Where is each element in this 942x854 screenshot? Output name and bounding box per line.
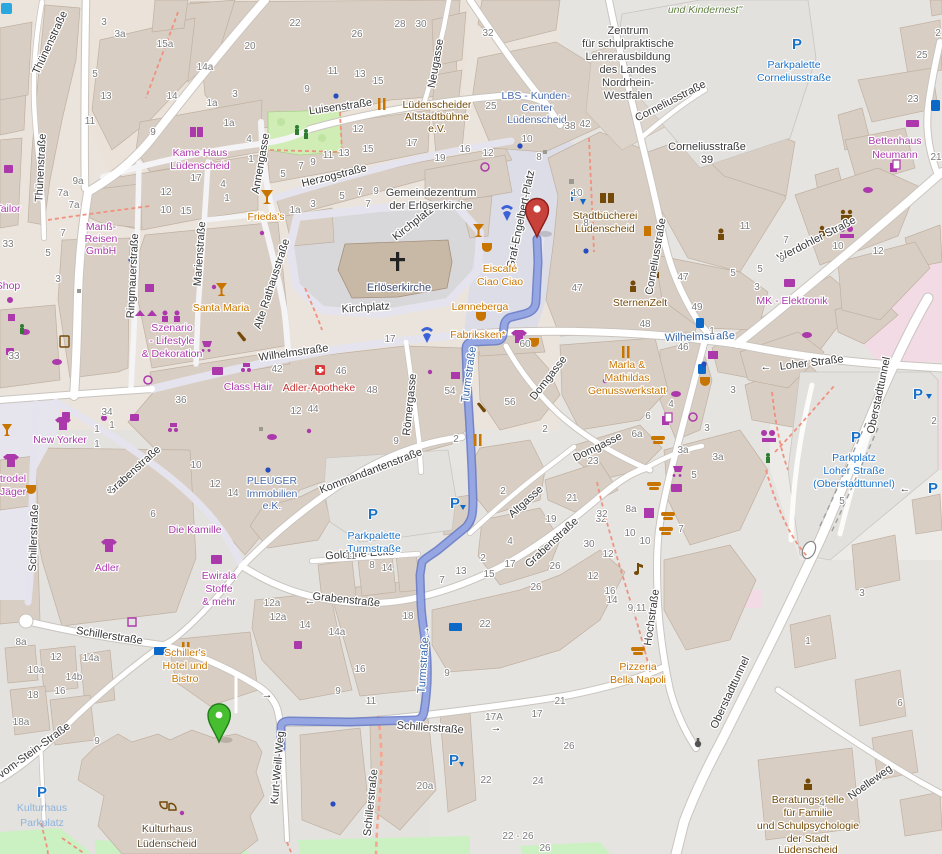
svg-text:Parkplatz: Parkplatz: [20, 817, 64, 829]
svg-text:11: 11: [366, 696, 377, 707]
svg-text:Lüdenscheid: Lüdenscheid: [137, 838, 197, 850]
svg-text:Santa Maria: Santa Maria: [193, 302, 250, 314]
svg-text:4: 4: [220, 179, 226, 190]
svg-text:4: 4: [819, 798, 825, 809]
svg-text:Schiller's: Schiller's: [164, 647, 206, 659]
svg-text:19: 19: [545, 514, 557, 525]
svg-text:7: 7: [678, 524, 684, 535]
svg-text:Pizzeria: Pizzeria: [619, 661, 657, 673]
svg-text:17: 17: [531, 709, 543, 720]
svg-text:→: →: [262, 689, 273, 701]
svg-text:8: 8: [583, 218, 589, 229]
svg-text:Fabriksken*: Fabriksken*: [450, 329, 505, 341]
svg-text:8: 8: [369, 560, 375, 571]
svg-text:22: 22: [480, 775, 492, 786]
svg-text:34: 34: [101, 407, 113, 418]
svg-text:P: P: [792, 36, 802, 53]
svg-text:und Kindernest": und Kindernest": [668, 4, 744, 16]
svg-text:8a: 8a: [15, 637, 27, 648]
svg-text:9a: 9a: [72, 176, 84, 187]
svg-text:3: 3: [730, 385, 736, 396]
svg-text:7: 7: [783, 235, 789, 246]
svg-text:20: 20: [244, 41, 256, 52]
svg-text:des Landes: des Landes: [600, 64, 657, 76]
svg-text:9,11: 9,11: [628, 603, 647, 614]
svg-text:7: 7: [357, 187, 363, 198]
svg-text:7: 7: [439, 575, 445, 586]
svg-text:14: 14: [166, 91, 178, 102]
svg-text:21: 21: [554, 696, 566, 707]
svg-text:5: 5: [339, 191, 345, 202]
svg-text:1: 1: [248, 154, 254, 165]
svg-text:P: P: [450, 495, 460, 512]
svg-text:Marla &: Marla &: [609, 359, 645, 371]
svg-text:4: 4: [507, 536, 513, 547]
svg-text:20a: 20a: [417, 781, 434, 792]
svg-text:17: 17: [406, 138, 418, 149]
svg-text:1: 1: [94, 424, 100, 435]
svg-text:für Familie: für Familie: [783, 807, 832, 819]
svg-text:Hotel und: Hotel und: [163, 660, 208, 672]
svg-text:47: 47: [571, 283, 583, 294]
svg-text:10: 10: [571, 188, 583, 199]
svg-text:12: 12: [352, 124, 364, 135]
svg-text:der Erlöserkirche: der Erlöserkirche: [389, 200, 472, 212]
svg-text:& mehr: & mehr: [202, 596, 236, 608]
svg-text:←: ←: [305, 595, 316, 607]
svg-text:9: 9: [779, 254, 785, 265]
svg-text:19: 19: [434, 153, 446, 164]
svg-text:25: 25: [485, 101, 497, 112]
svg-text:22: 22: [289, 18, 301, 29]
svg-text:13: 13: [338, 148, 350, 159]
svg-text:Beratungsstelle: Beratungsstelle: [772, 794, 845, 806]
svg-text:7: 7: [298, 161, 304, 172]
svg-text:Frieda's: Frieda's: [247, 211, 284, 223]
svg-text:Zentrum: Zentrum: [608, 25, 649, 37]
svg-text:2: 2: [453, 434, 459, 445]
svg-text:e.K.: e.K.: [263, 500, 282, 512]
svg-text:3: 3: [859, 588, 865, 599]
svg-text:2: 2: [935, 28, 941, 39]
svg-text:Corneliusstraße: Corneliusstraße: [757, 72, 831, 84]
svg-text:48: 48: [639, 319, 651, 330]
svg-text:39: 39: [701, 154, 713, 166]
svg-text:13: 13: [354, 69, 366, 80]
svg-text:10: 10: [190, 460, 202, 471]
svg-text:10: 10: [639, 536, 651, 547]
svg-text:26: 26: [539, 843, 551, 854]
svg-text:5: 5: [280, 169, 286, 180]
svg-text:42: 42: [271, 364, 283, 375]
svg-text:1a: 1a: [206, 98, 218, 109]
svg-text:6: 6: [645, 411, 651, 422]
svg-text:Nordrhein-: Nordrhein-: [602, 77, 654, 89]
svg-text:16: 16: [459, 144, 471, 155]
svg-text:30: 30: [415, 19, 427, 30]
svg-text:1: 1: [109, 420, 115, 431]
svg-text:Kame Haus: Kame Haus: [173, 147, 228, 159]
svg-text:3: 3: [101, 17, 107, 28]
svg-text:10: 10: [832, 241, 844, 252]
svg-text:11: 11: [328, 66, 339, 77]
svg-text:12: 12: [50, 652, 62, 663]
svg-text:Lüdenscheid: Lüdenscheid: [170, 160, 230, 172]
svg-text:13: 13: [100, 91, 112, 102]
svg-text:22: 22: [479, 619, 491, 630]
svg-text:24: 24: [532, 776, 544, 787]
svg-text:23: 23: [907, 94, 919, 105]
svg-text:10a: 10a: [28, 665, 45, 676]
svg-text:26: 26: [530, 582, 542, 593]
svg-text:3a: 3a: [114, 29, 126, 40]
svg-text:30: 30: [583, 539, 595, 550]
svg-text:7: 7: [365, 199, 371, 210]
svg-text:15: 15: [362, 144, 374, 155]
svg-text:Jäger: Jäger: [0, 486, 27, 498]
svg-text:4: 4: [668, 399, 674, 410]
svg-text:15a: 15a: [157, 39, 174, 50]
svg-text:3a: 3a: [712, 452, 724, 463]
svg-text:2: 2: [500, 486, 506, 497]
svg-text:P: P: [449, 752, 459, 769]
svg-text:Lehrerausbildung: Lehrerausbildung: [585, 51, 670, 63]
svg-text:10: 10: [160, 205, 172, 216]
svg-text:Genusswerkstatt: Genusswerkstatt: [588, 385, 666, 397]
svg-text:Tailor: Tailor: [0, 203, 21, 215]
svg-text:14a: 14a: [197, 62, 214, 73]
svg-text:9: 9: [393, 436, 399, 447]
svg-text:Stoffe: Stoffe: [205, 583, 232, 595]
svg-text:32: 32: [482, 28, 494, 39]
svg-text:26: 26: [549, 561, 561, 572]
svg-text:GmbH: GmbH: [86, 245, 116, 257]
svg-text:Die Kamille: Die Kamille: [168, 524, 221, 536]
svg-text:1a: 1a: [289, 205, 301, 216]
svg-text:5: 5: [839, 496, 845, 507]
svg-text:PLEUGER: PLEUGER: [247, 475, 298, 487]
svg-text:49: 49: [691, 302, 703, 313]
svg-text:Bistro: Bistro: [172, 673, 199, 685]
svg-text:1: 1: [805, 636, 811, 647]
svg-text:für schulpraktische: für schulpraktische: [582, 38, 674, 50]
svg-text:12a: 12a: [264, 598, 281, 609]
svg-text:17: 17: [384, 334, 396, 345]
svg-text:1: 1: [107, 485, 113, 496]
svg-text:54: 54: [444, 386, 456, 397]
svg-text:Parkpalette: Parkpalette: [767, 59, 820, 71]
svg-text:56: 56: [504, 397, 516, 408]
svg-text:Wilhelmstraße: Wilhelmstraße: [665, 330, 736, 344]
svg-text:3: 3: [704, 423, 710, 434]
svg-text:47: 47: [677, 272, 689, 283]
svg-text:P: P: [851, 429, 861, 446]
svg-text:3: 3: [232, 89, 238, 100]
svg-text:1: 1: [224, 193, 230, 204]
svg-text:15: 15: [483, 569, 495, 580]
svg-text:7a: 7a: [57, 188, 69, 199]
svg-text:Lønneberga: Lønneberga: [452, 301, 509, 313]
svg-text:38: 38: [564, 121, 576, 132]
svg-text:11: 11: [85, 116, 96, 127]
svg-text:36: 36: [175, 395, 187, 406]
svg-text:9: 9: [444, 668, 450, 679]
svg-text:→: →: [491, 722, 502, 734]
svg-text:15: 15: [180, 206, 192, 217]
svg-text:17: 17: [504, 559, 516, 570]
svg-text:Altstadtbühne: Altstadtbühne: [405, 111, 469, 123]
svg-text:Lüdenscheider: Lüdenscheider: [403, 99, 472, 111]
svg-text:1a: 1a: [223, 118, 235, 129]
svg-text:& Dekoration: & Dekoration: [142, 348, 203, 360]
svg-text:3: 3: [310, 199, 316, 210]
svg-text:6: 6: [150, 509, 156, 520]
svg-text:32: 32: [596, 509, 608, 520]
svg-text:9: 9: [310, 157, 316, 168]
svg-text:5: 5: [757, 264, 763, 275]
svg-text:7: 7: [60, 228, 66, 239]
svg-text:Westfalen: Westfalen: [604, 90, 653, 102]
svg-text:18: 18: [27, 690, 39, 701]
svg-text:5: 5: [691, 470, 697, 481]
svg-text:2: 2: [542, 424, 548, 435]
svg-text:Parkpalette: Parkpalette: [347, 530, 400, 542]
svg-text:Erlöserkirche: Erlöserkirche: [367, 282, 431, 294]
svg-text:8: 8: [536, 152, 542, 163]
svg-text:Manß-: Manß-: [86, 221, 117, 233]
svg-text:14: 14: [381, 563, 393, 574]
svg-text:Ciao Ciao: Ciao Ciao: [477, 276, 523, 288]
svg-text:14a: 14a: [83, 653, 100, 664]
svg-text:Adler-Apotheke: Adler-Apotheke: [283, 382, 356, 394]
svg-text:6a: 6a: [631, 429, 643, 440]
svg-text:18a: 18a: [13, 717, 30, 728]
svg-text:9: 9: [304, 84, 310, 95]
svg-text:26: 26: [563, 741, 575, 752]
svg-text:6: 6: [897, 698, 903, 709]
svg-text:21: 21: [930, 152, 942, 163]
svg-text:14b: 14b: [66, 672, 83, 683]
svg-text:Shop: Shop: [0, 280, 20, 292]
svg-text:33: 33: [2, 239, 14, 250]
svg-text:3a: 3a: [677, 445, 689, 456]
svg-text:12: 12: [602, 549, 614, 560]
svg-text:Lüdenscheid: Lüdenscheid: [507, 114, 567, 126]
svg-text:3: 3: [754, 282, 760, 293]
svg-text:12: 12: [290, 406, 302, 417]
svg-text:Szenario: Szenario: [151, 322, 193, 334]
svg-text:23: 23: [587, 456, 599, 467]
svg-text:12: 12: [872, 246, 884, 257]
svg-text:11: 11: [323, 150, 334, 161]
svg-text:- Lifestyle: - Lifestyle: [150, 335, 195, 347]
svg-text:26: 26: [351, 29, 363, 40]
svg-text:14: 14: [227, 488, 239, 499]
svg-text:12: 12: [587, 571, 599, 582]
svg-text:New Yorker: New Yorker: [33, 434, 87, 446]
svg-text:11: 11: [740, 221, 751, 232]
svg-text:14: 14: [299, 620, 311, 631]
svg-text:Kulturhaus: Kulturhaus: [17, 802, 67, 814]
svg-text:5: 5: [92, 69, 98, 80]
svg-text:15: 15: [372, 76, 384, 87]
svg-text:P: P: [913, 386, 923, 403]
svg-text:12: 12: [160, 187, 172, 198]
svg-text:4: 4: [246, 134, 252, 145]
svg-text:Schillerstraße: Schillerstraße: [27, 504, 41, 572]
svg-text:22 - 26: 22 - 26: [502, 831, 534, 842]
svg-text:46: 46: [335, 366, 347, 377]
svg-text:Class Hair: Class Hair: [224, 381, 273, 393]
svg-text:Corneliusstraße: Corneliusstraße: [668, 141, 746, 153]
svg-text:2: 2: [480, 553, 486, 564]
svg-text:12a: 12a: [270, 612, 287, 623]
svg-text:28: 28: [394, 19, 406, 30]
svg-text:10: 10: [521, 134, 533, 145]
svg-text:←: ←: [900, 483, 911, 495]
svg-text:14a: 14a: [329, 627, 346, 638]
svg-text:44: 44: [307, 404, 319, 415]
svg-text:SternenZelt: SternenZelt: [613, 297, 667, 309]
svg-text:LBS - Kunden-: LBS - Kunden-: [502, 90, 571, 102]
svg-text:(Oberstadttunnel): (Oberstadttunnel): [813, 478, 895, 490]
svg-text:48: 48: [366, 385, 378, 396]
svg-text:Neumann: Neumann: [872, 149, 918, 161]
svg-text:Immobilien: Immobilien: [247, 488, 298, 500]
svg-text:Mathildas: Mathildas: [605, 372, 650, 384]
svg-text:8a: 8a: [625, 504, 637, 515]
svg-text:←: ←: [761, 361, 772, 373]
svg-text:3: 3: [55, 274, 61, 285]
svg-text:46: 46: [677, 342, 689, 353]
svg-text:11: 11: [346, 551, 357, 562]
svg-text:trodel: trodel: [0, 473, 26, 485]
svg-text:Parkplatz: Parkplatz: [832, 452, 876, 464]
svg-text:13: 13: [455, 566, 467, 577]
svg-text:Center: Center: [521, 102, 553, 114]
svg-text:17: 17: [190, 173, 202, 184]
svg-text:33: 33: [8, 351, 20, 362]
svg-text:21: 21: [566, 493, 578, 504]
svg-text:Kulturhaus: Kulturhaus: [142, 823, 192, 835]
svg-text:1: 1: [94, 439, 100, 450]
svg-text:MK - Elektronik: MK - Elektronik: [756, 295, 828, 307]
svg-text:P: P: [928, 480, 938, 497]
svg-text:Ewirala: Ewirala: [202, 570, 237, 582]
svg-text:17A: 17A: [485, 712, 503, 723]
svg-text:Bettenhaus: Bettenhaus: [868, 135, 921, 147]
svg-text:18: 18: [402, 611, 414, 622]
svg-text:Lüdenscheid: Lüdenscheid: [778, 844, 838, 854]
svg-text:16: 16: [354, 664, 366, 675]
svg-text:12: 12: [209, 479, 221, 490]
svg-text:25: 25: [916, 50, 928, 61]
svg-text:9: 9: [335, 686, 341, 697]
svg-text:9: 9: [150, 127, 156, 138]
svg-text:Loher Straße: Loher Straße: [823, 465, 884, 477]
svg-text:Gemeindezentrum: Gemeindezentrum: [386, 187, 477, 199]
svg-text:60: 60: [519, 339, 531, 350]
svg-text:Eiscafé: Eiscafé: [483, 263, 518, 275]
svg-text:5: 5: [45, 248, 51, 259]
svg-text:7a: 7a: [68, 200, 80, 211]
svg-text:Bella Napoli: Bella Napoli: [610, 674, 666, 686]
svg-text:e.V.: e.V.: [428, 123, 446, 135]
svg-text:P: P: [368, 506, 378, 523]
svg-text:9: 9: [94, 736, 100, 747]
svg-text:2: 2: [931, 416, 937, 427]
svg-text:14: 14: [606, 595, 618, 606]
svg-text:Reisen: Reisen: [85, 233, 118, 245]
svg-text:1: 1: [709, 326, 715, 337]
svg-text:Adler: Adler: [95, 562, 120, 574]
svg-text:10: 10: [624, 528, 636, 539]
svg-text:und Schulpsychologie: und Schulpsychologie: [757, 820, 859, 832]
svg-text:12: 12: [482, 148, 494, 159]
svg-text:P: P: [37, 784, 47, 801]
svg-text:9: 9: [373, 186, 379, 197]
svg-text:42: 42: [579, 119, 591, 130]
svg-text:16: 16: [54, 686, 66, 697]
svg-text:5: 5: [730, 268, 736, 279]
